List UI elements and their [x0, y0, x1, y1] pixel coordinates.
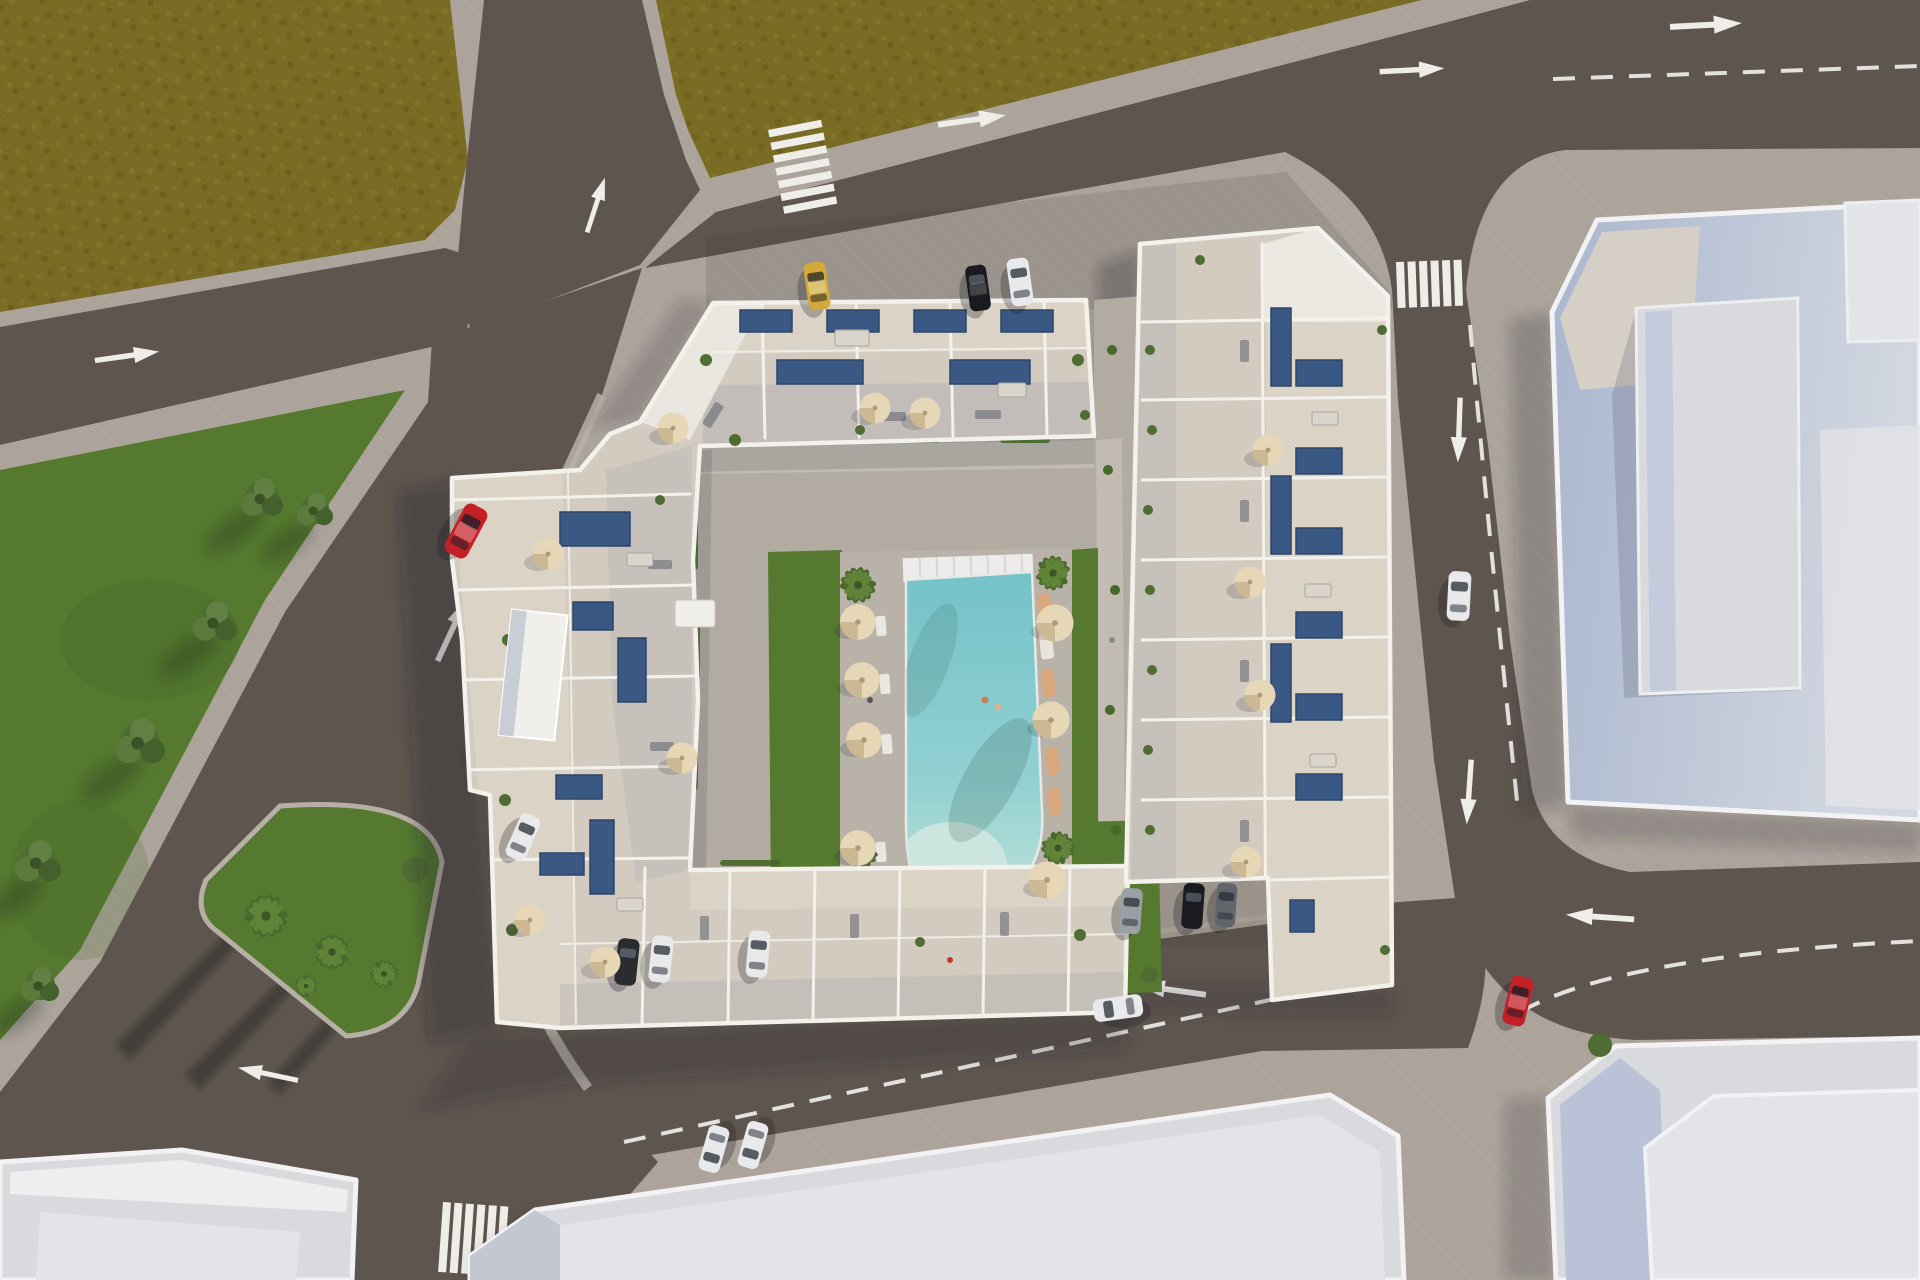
umbrella [1036, 604, 1073, 641]
roof-volume [1645, 1090, 1920, 1280]
umbrella [844, 662, 880, 698]
solar-panel [1296, 612, 1342, 638]
table [835, 330, 869, 346]
solar-panel [914, 310, 966, 332]
person [1109, 637, 1115, 643]
pergola [675, 600, 715, 627]
utility-kiosk [499, 610, 568, 741]
bush [1142, 967, 1158, 983]
umbrella [910, 398, 941, 429]
umbrella [1231, 847, 1262, 878]
umbrella [1253, 435, 1284, 466]
table [1305, 584, 1331, 597]
solar-panel [573, 602, 613, 630]
table [617, 898, 643, 911]
person [947, 957, 953, 963]
solar-panel [1296, 694, 1342, 720]
umbrella [840, 604, 876, 640]
solar-panel [540, 853, 584, 875]
umbrella [658, 413, 689, 444]
bush [1588, 1033, 1612, 1057]
umbrella [590, 947, 621, 978]
umbrella [1032, 701, 1069, 738]
person [867, 697, 873, 703]
umbrella [840, 830, 876, 866]
umbrella [1235, 567, 1266, 598]
solar-panel [1296, 774, 1342, 800]
solar-panel [556, 775, 602, 799]
umbrella [846, 722, 882, 758]
table [1312, 412, 1338, 425]
roof-volume [1820, 425, 1920, 810]
building-southwest [0, 1150, 356, 1280]
roof-volume [1845, 200, 1920, 342]
umbrella [533, 539, 564, 570]
table [998, 383, 1026, 397]
roof-volume-side [1645, 310, 1676, 692]
solar-panel [1001, 310, 1053, 332]
solar-panel [560, 512, 630, 546]
solar-panel [1271, 308, 1291, 386]
solar-panel [1296, 360, 1342, 386]
table [627, 553, 653, 566]
solar-panel [827, 310, 879, 332]
solar-panel [777, 360, 863, 384]
person [995, 704, 1002, 711]
solar-panel [618, 638, 646, 702]
solar-panel [1290, 900, 1314, 932]
building-northeast [1552, 200, 1920, 820]
solar-panel [1296, 448, 1342, 474]
solar-panel [1271, 644, 1291, 722]
umbrella [1028, 861, 1065, 898]
render-viewport [0, 0, 1920, 1280]
solar-panel [740, 310, 792, 332]
umbrella [1245, 680, 1276, 711]
table [1310, 754, 1336, 767]
person [982, 697, 989, 704]
scene-svg [0, 0, 1920, 1280]
solar-panel [1296, 528, 1342, 554]
umbrella [667, 743, 698, 774]
building-southeast [1548, 1038, 1920, 1280]
umbrella [515, 905, 546, 936]
umbrella [860, 393, 891, 424]
solar-panel [1271, 476, 1291, 554]
solar-panel [590, 820, 614, 894]
solar-panel [950, 360, 1030, 384]
